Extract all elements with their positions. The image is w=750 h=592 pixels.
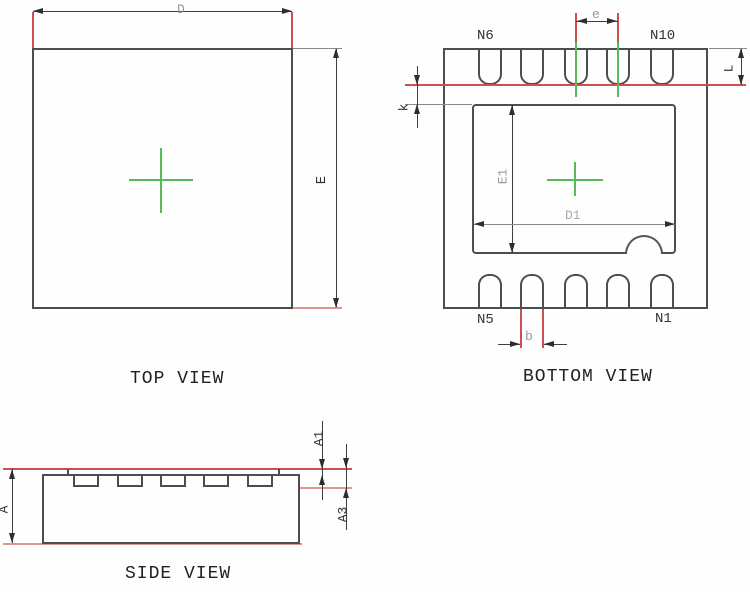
arrowhead-up [509,105,515,115]
arrowhead-up [333,48,339,58]
e1-dimension-label: E1 [496,169,509,185]
pin-pad [520,274,544,308]
pin-pad [478,274,502,308]
arrowhead-left [544,341,554,347]
red-extension-line [32,12,34,48]
pin-label-n10: N10 [650,29,675,43]
lead-notch [117,474,143,487]
e-dimension-label: E [315,176,329,184]
d-dimension-line [33,11,292,12]
arrowhead-down [319,459,325,469]
arrowhead-down [414,75,420,85]
center-mark-vertical [160,148,162,213]
lead-notch [247,474,273,487]
e1-dimension-line [512,105,513,253]
pin-label-n5: N5 [477,313,494,327]
lead-notch [160,474,186,487]
lead-end-tick [67,469,69,475]
pin-pad [520,48,544,85]
e-pitch-label: e [592,8,600,21]
arrowhead-down [509,243,515,253]
green-pin-centerline [575,42,577,97]
pin-pad [606,274,630,308]
l-dimension-label: L [722,65,735,73]
pin-label-n6: N6 [477,29,494,43]
k-dimension-label: k [397,104,410,112]
arrowhead-up [343,488,349,498]
a-dimension-label: A [0,506,10,514]
red-extension-line [520,309,522,348]
pin-pad [478,48,502,85]
d1-dimension-label: D1 [565,209,581,222]
arrowhead-right [607,18,617,24]
a1-dimension-label: A1 [312,431,325,447]
a-dimension-line [12,469,13,543]
center-mark-vertical [574,162,576,196]
pin-pad [564,274,588,308]
lead-end-tick [278,469,280,475]
side-view-title: SIDE VIEW [125,565,231,583]
arrowhead-down [738,75,744,85]
d1-dimension-line [474,224,675,225]
pin-label-n1: N1 [655,312,672,326]
bottom-view-title: BOTTOM VIEW [523,368,653,386]
arrowhead-up [414,104,420,114]
arrowhead-left [474,221,484,227]
pin-pad [650,48,674,85]
arrowhead-down [343,458,349,468]
lead-notch [73,474,99,487]
lead-notch [203,474,229,487]
pin-pad [650,274,674,308]
arrowhead-right [665,221,675,227]
e-dimension-line [336,49,337,307]
red-top-plane-line [3,468,352,470]
arrowhead-down [9,533,15,543]
arrowhead-up [9,469,15,479]
arrowhead-left [33,8,43,14]
a3-dimension-label: A3 [336,507,349,523]
arrowhead-up [738,48,744,58]
red-extension-line [291,12,293,48]
top-view-title: TOP VIEW [130,370,224,388]
arrowhead-down [333,298,339,308]
arrowhead-left [577,18,587,24]
arrowhead-up [319,475,325,485]
arrowhead-right [510,341,520,347]
b-dimension-label: b [525,330,533,343]
drawing-canvas: D E TOP VIEW e N6 N10 L k E1 [0,0,750,592]
red-centerline-ext [617,13,619,42]
d-dimension-label: D [177,3,185,16]
green-pin-centerline [617,42,619,97]
